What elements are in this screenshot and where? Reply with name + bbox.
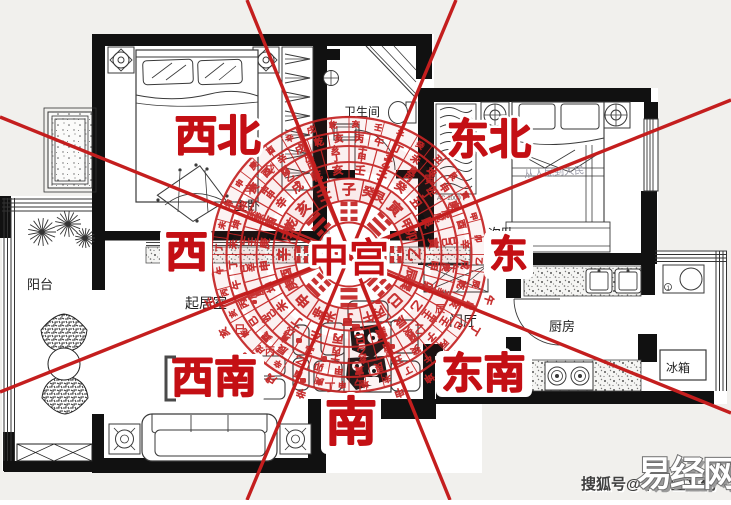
svg-text:庚: 庚: [257, 237, 272, 250]
svg-text:未: 未: [227, 239, 240, 251]
svg-text:午: 午: [354, 377, 366, 392]
svg-text:寅: 寅: [353, 364, 364, 377]
svg-text:巳: 巳: [235, 323, 246, 336]
svg-text:乙: 乙: [415, 323, 426, 336]
svg-text:丙: 丙: [265, 346, 275, 358]
svg-text:子: 子: [330, 354, 340, 365]
svg-text:申: 申: [338, 380, 347, 390]
svg-text:子: 子: [342, 182, 356, 198]
svg-text:东南: 东南: [441, 350, 525, 397]
svg-text:巳: 巳: [239, 263, 250, 273]
svg-text:厨房: 厨房: [549, 319, 575, 334]
svg-text:中宫: 中宫: [309, 237, 389, 281]
svg-text:甲: 甲: [426, 259, 440, 272]
svg-text:乙: 乙: [474, 257, 483, 265]
svg-text:寅: 寅: [425, 172, 436, 186]
svg-text:巳: 巳: [448, 236, 459, 246]
svg-text:乾: 乾: [329, 120, 338, 131]
svg-text:西南: 西南: [171, 355, 257, 403]
svg-text:丁: 丁: [325, 381, 336, 394]
svg-text:巳: 巳: [354, 331, 367, 345]
svg-text:寅: 寅: [426, 237, 441, 250]
svg-text:丙: 丙: [332, 331, 345, 345]
svg-text:甲: 甲: [334, 364, 344, 376]
svg-text:壬: 壬: [354, 163, 367, 178]
svg-text:亥: 亥: [352, 119, 361, 129]
svg-text:东北: 东北: [447, 116, 531, 163]
svg-text:丁: 丁: [214, 243, 223, 251]
svg-text:冰箱: 冰箱: [666, 360, 690, 375]
svg-text:西: 西: [165, 229, 208, 277]
svg-text:丙: 丙: [354, 134, 365, 146]
svg-text:辰: 辰: [435, 304, 445, 316]
svg-text:乙: 乙: [406, 248, 422, 262]
svg-text:子: 子: [358, 144, 368, 155]
svg-text:南: 南: [325, 395, 377, 453]
svg-text:戌: 戌: [458, 259, 471, 270]
svg-text:午: 午: [214, 266, 225, 275]
svg-text:西北: 西北: [175, 113, 261, 161]
svg-text:亥: 亥: [332, 163, 345, 178]
svg-text:辛: 辛: [458, 239, 471, 250]
svg-text:辛: 辛: [276, 248, 292, 262]
svg-text:辛: 辛: [245, 182, 256, 196]
svg-text:丁: 丁: [228, 259, 240, 270]
svg-text:东: 东: [489, 235, 527, 277]
svg-text:易经网: 易经网: [637, 455, 731, 494]
svg-text:阳台: 阳台: [27, 277, 53, 292]
svg-text:申: 申: [257, 259, 272, 272]
svg-text:卯: 卯: [473, 234, 484, 243]
svg-text:戌: 戌: [265, 163, 275, 176]
svg-text:亥: 亥: [334, 132, 345, 145]
